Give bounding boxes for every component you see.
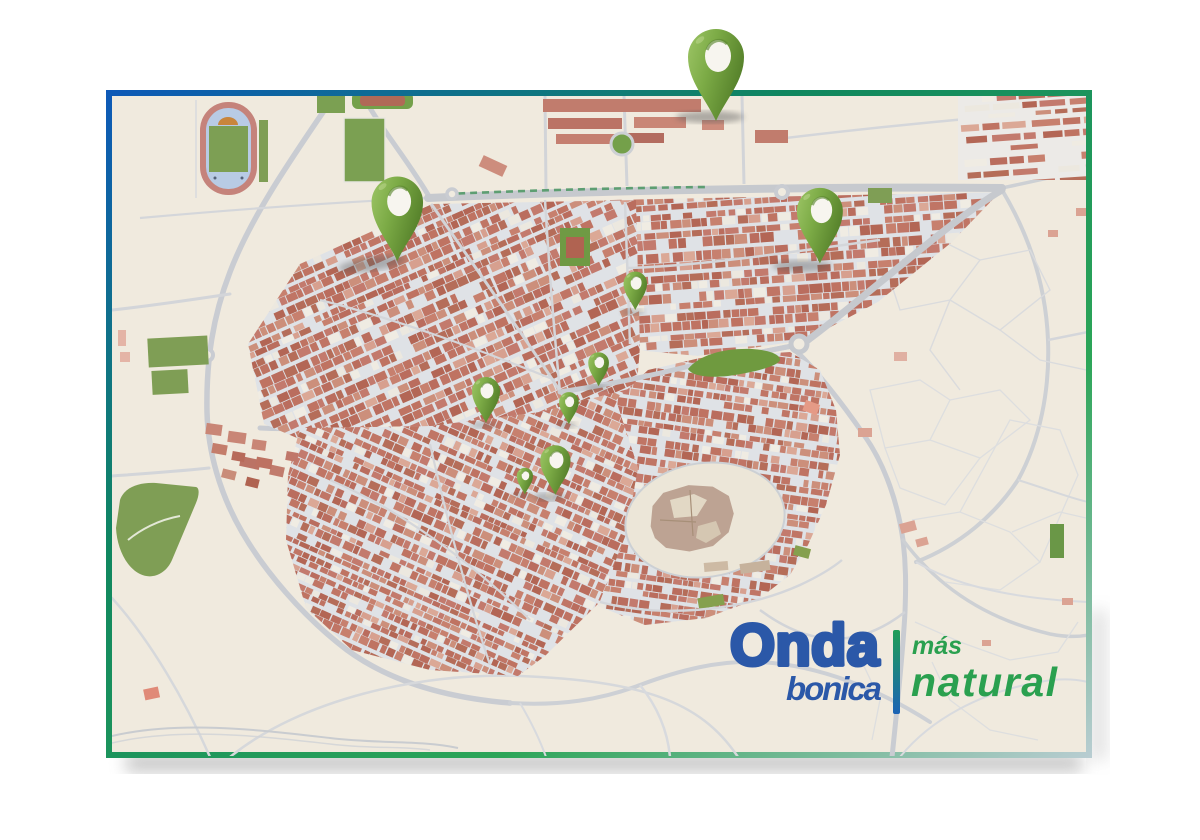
svg-text:Onda: Onda [730,613,880,678]
svg-text:más: más [912,632,962,660]
svg-text:bonica: bonica [786,670,882,707]
svg-text:natural: natural [911,659,1059,705]
